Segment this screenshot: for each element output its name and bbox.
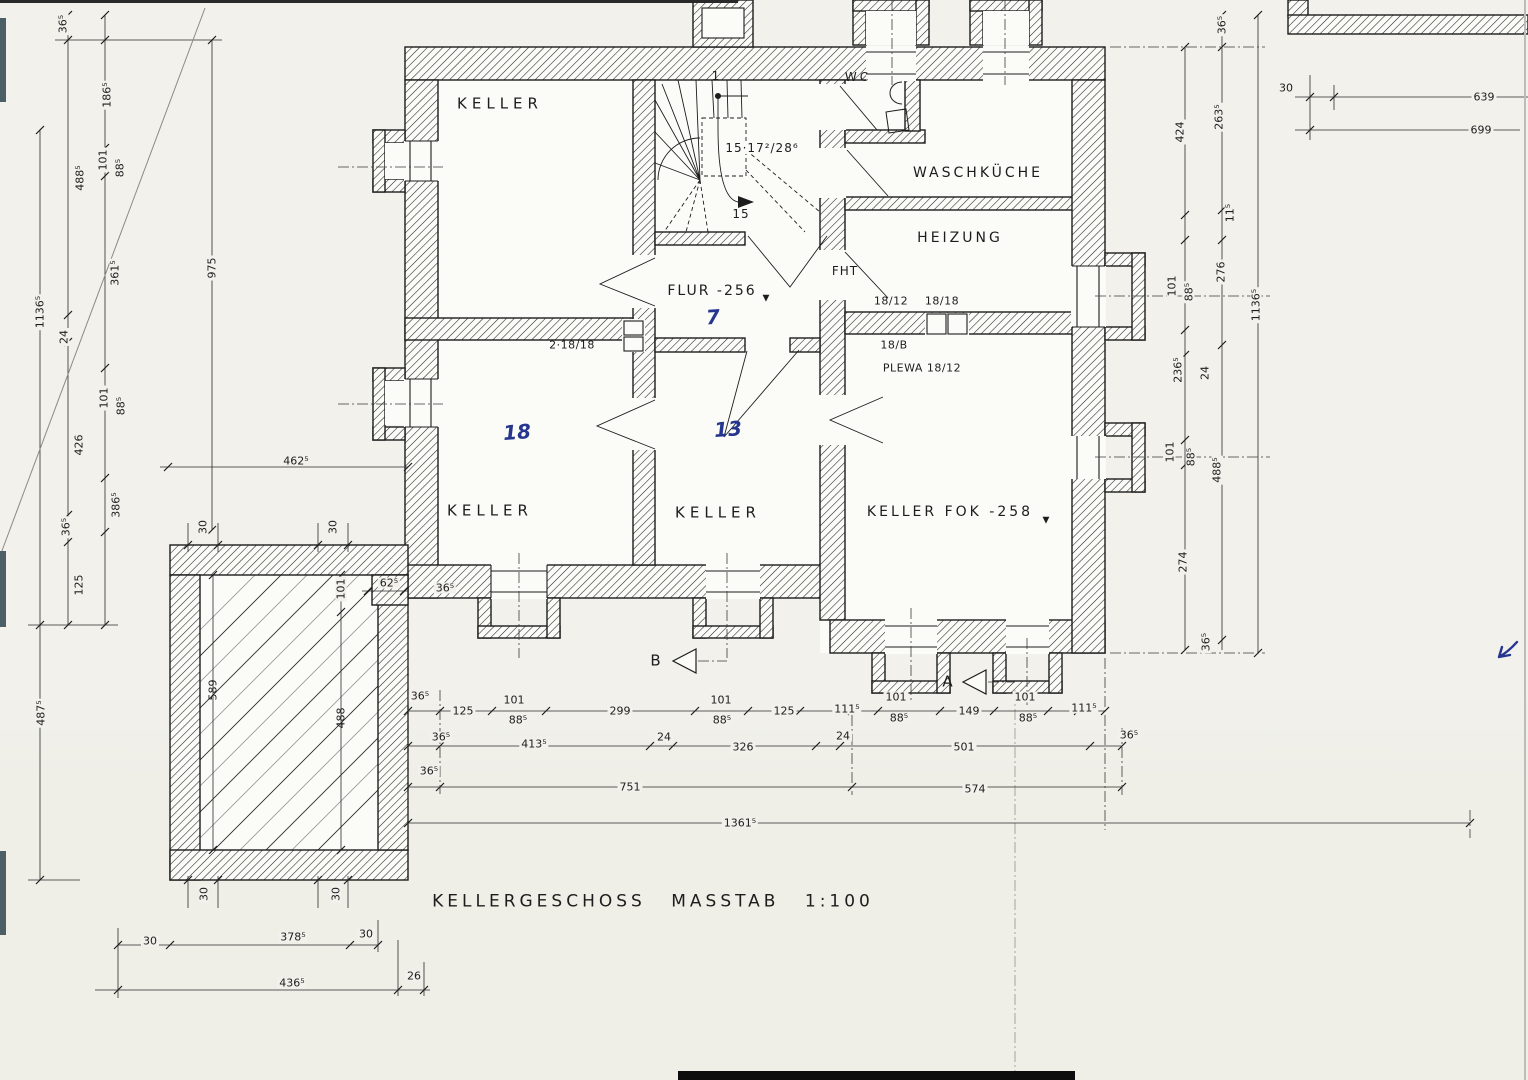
dim-label: 149 [957,706,982,717]
stair-first-tread: 1 [712,70,721,82]
dim-label: 36⁵ [434,583,456,594]
dim-label: 111⁵ [832,704,861,715]
dim-label: 30 [1277,83,1295,94]
dim-label: 36⁵ [418,766,440,777]
dim-label: 36⁵ [1201,631,1212,653]
dim-label: 36⁵ [430,732,452,743]
dim-label: 299 [608,706,633,717]
dim-label: 88⁵ [115,157,126,179]
dim-label: 186⁵ [102,80,113,109]
dim-label: 488⁵ [1212,455,1223,484]
room-label-heizung: HEIZUNG [917,231,1003,245]
dim-label: 1136⁵ [1251,287,1262,323]
room-label-flur: FLUR -256 [667,284,756,298]
dim-label: 378⁵ [278,932,307,943]
dim-label: 276 [1216,260,1227,285]
dim-label: 62⁵ [378,578,400,589]
dim-label: 574 [963,784,988,795]
dim-label: 413⁵ [519,739,548,750]
handwritten-number-keller-left: 18 [502,421,531,443]
dim-label: 1361⁵ [722,818,758,829]
dim-label: 501 [952,742,977,753]
dim-label: 125 [451,706,476,717]
dim-label: 36⁵ [409,691,431,702]
flue-label-18-12: 18/12 [874,296,908,307]
stair-tread-count: 15 [732,208,749,220]
dim-label: 24 [59,328,70,346]
handwritten-number-flur: 7 [705,307,720,328]
dim-label: 589 [208,678,219,703]
dim-label: 36⁵ [1118,730,1140,741]
dim-label: 30 [199,885,210,903]
dim-label: 88⁵ [1184,281,1195,303]
dim-label: 88⁵ [116,395,127,417]
dim-label: 436⁵ [277,978,306,989]
dim-label: 88⁵ [507,715,529,726]
plewa-label: PLEWA 18/12 [883,363,961,374]
section-label-a: A [942,675,953,690]
dim-label: 101 [502,695,527,706]
dim-label: 36⁵ [61,516,72,538]
dim-label: 11⁵ [1225,202,1236,224]
dim-label: 101 [1013,692,1038,703]
dim-label: 101 [99,386,110,411]
dim-label: 101 [336,577,347,602]
flue-label-18-18: 18/18 [925,296,959,307]
room-label-keller-left: KELLER [447,504,533,519]
dim-label: 30 [141,936,159,947]
dim-label: 274 [1178,550,1189,575]
dim-label: 30 [357,929,375,940]
dim-label: 386⁵ [111,490,122,519]
dim-label: 24 [1200,364,1211,382]
handwritten-arrow [1499,642,1517,657]
dim-label: 24 [834,731,852,742]
dim-label: 24 [655,732,673,743]
dim-label: 326 [731,742,756,753]
dim-label: 699 [1469,125,1494,136]
floor-plan-drawing [0,0,1528,1080]
fht-label: FHT [832,265,858,277]
section-b-arrow [673,649,696,673]
dim-label: 1136⁵ [35,294,46,330]
section-label-b: B [650,654,661,669]
dim-label: 88⁵ [888,713,910,724]
drawing-title: KELLERGESCHOSS MASSTAB 1:100 [432,894,874,911]
dim-label: 488⁵ [75,163,86,192]
dim-label: 101 [884,692,909,703]
dim-label: 975 [207,256,218,281]
room-label-keller-top-left: KELLER [457,97,543,112]
floor-plan-sheet: KELLER WC WASCHKÜCHE HEIZUNG FLUR -256 ▼… [0,0,1528,1080]
dim-label: 426 [74,433,85,458]
flue-label-2-18-18: 2·18/18 [549,340,595,351]
dim-label: 487⁵ [36,698,47,727]
flue-label-18b: 18/B [880,340,907,351]
dim-label: 30 [198,518,209,536]
dim-label: 236⁵ [1173,355,1184,384]
dim-label: 88⁵ [711,715,733,726]
dim-label: 462⁵ [281,456,310,467]
section-a-arrow [963,670,986,694]
dim-label: 101 [98,148,109,173]
dim-label: 488 [336,706,347,731]
dim-label: 101 [1165,440,1176,465]
dim-label: 263⁵ [1214,102,1225,131]
dim-label: 88⁵ [1186,446,1197,468]
dim-label: 101 [1167,274,1178,299]
handwritten-number-keller-mid: 13 [713,418,742,440]
dim-label: 30 [331,885,342,903]
dim-label: 111⁵ [1069,703,1098,714]
dim-label: 125 [74,573,85,598]
dim-label: 125 [772,706,797,717]
room-label-waschkueche: WASCHKÜCHE [913,166,1043,180]
dim-label: 36⁵ [58,13,69,35]
level-marker-flur: ▼ [763,295,770,304]
dim-label: 30 [328,518,339,536]
dim-label: 36⁵ [1217,14,1228,36]
room-label-keller-mid: KELLER [675,506,761,521]
dim-label: 26 [405,971,423,982]
dim-label: 639 [1472,92,1497,103]
stair-dimension-label: 15·17²/28⁶ [725,142,798,154]
dim-label: 88⁵ [1017,713,1039,724]
dim-label: 361⁵ [110,258,121,287]
room-label-keller-fok: KELLER FOK -258 [867,505,1033,519]
level-marker-fok: ▼ [1043,517,1050,526]
dim-label: 424 [1175,120,1186,145]
dim-label: 751 [618,782,643,793]
dim-label: 101 [709,695,734,706]
room-label-wc: WC [845,71,871,83]
